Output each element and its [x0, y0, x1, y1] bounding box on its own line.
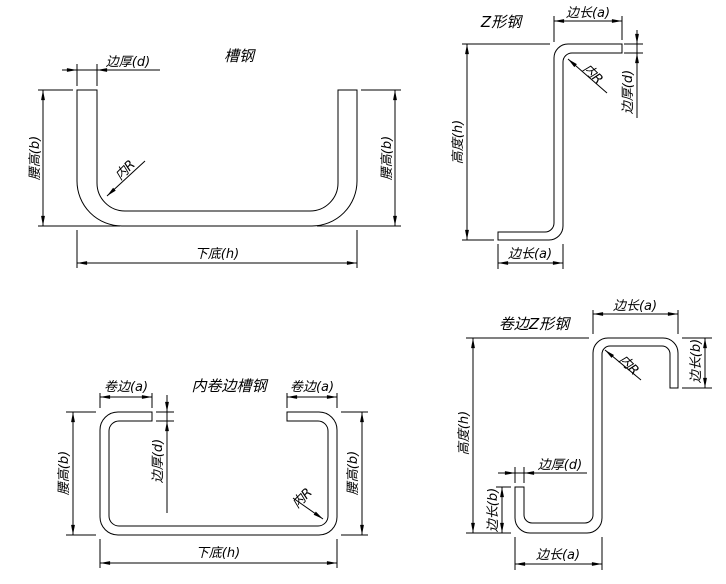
dim-label-bottom-base: 下底(h)	[195, 247, 239, 262]
profile-outline	[515, 338, 678, 533]
dim-label-waist-height-right: 腰高(b)	[346, 451, 361, 495]
dim-label-height: 高度(h)	[457, 411, 472, 455]
diagram-title: 内卷边槽钢	[191, 377, 268, 395]
dim-label-inner-radius: 内R	[615, 352, 641, 378]
profile-outline	[100, 412, 337, 535]
dim-label-edge-thickness: 边厚(d)	[151, 439, 166, 483]
dim-label-bottom-edge-length: 边长(a)	[536, 548, 580, 563]
dim-label-edge-thickness: 边厚(d)	[538, 458, 582, 473]
diagram-title: 槽钢	[224, 47, 256, 65]
steel-profiles-drawing: 槽钢 边厚(d) 腰高(b) 腰高(b) 内R 下底(h) Z形钢 边长(a)	[0, 0, 726, 584]
dim-label-bottom-edge-length: 边长(a)	[508, 247, 552, 262]
dim-label-waist-height-left: 腰高(b)	[28, 136, 43, 180]
dim-label-inner-radius: 内R	[579, 61, 605, 87]
profile-outline	[498, 44, 622, 240]
dim-label-lip-right: 边长(b)	[689, 339, 704, 383]
extension-lines	[66, 393, 368, 568]
dim-label-edge-thickness: 边厚(d)	[621, 70, 636, 114]
dim-label-top-edge-length: 边长(a)	[566, 6, 610, 21]
diagram-inward-lipped-channel-steel: 内卷边槽钢 卷边(a) 卷边(a) 边厚(d) 腰高(b) 腰高(b) 内R 下…	[57, 377, 368, 568]
diagram-lipped-z-shaped-steel: 卷边Z形钢 边长(a) 边长(b) 内R 高度(h) 边厚(d) 边长(b) 边…	[457, 299, 712, 570]
dim-label-lip-left: 边长(b)	[486, 488, 501, 532]
diagram-z-shaped-steel: Z形钢 边长(a) 边厚(d) 内R 高度(h) 边长(a)	[451, 6, 643, 269]
dim-label-bottom-base: 下底(h)	[196, 546, 240, 561]
dim-label-waist-height-right: 腰高(b)	[380, 136, 395, 180]
extension-lines	[466, 310, 712, 570]
dim-label-edge-thickness: 边厚(d)	[106, 55, 150, 70]
dim-label-lip-left: 卷边(a)	[104, 380, 148, 395]
drawing-sheet: 槽钢 边厚(d) 腰高(b) 腰高(b) 内R 下底(h) Z形钢 边长(a)	[0, 0, 726, 584]
dim-label-top-edge-length: 边长(a)	[613, 299, 657, 314]
extension-lines	[462, 16, 643, 269]
extension-lines	[38, 64, 401, 268]
diagram-title: 卷边Z形钢	[499, 315, 571, 333]
diagram-channel-steel: 槽钢 边厚(d) 腰高(b) 腰高(b) 内R 下底(h)	[28, 47, 401, 268]
profile-outline	[77, 90, 357, 226]
dim-label-inner-radius: 内R	[112, 157, 138, 183]
dim-label-waist-height-left: 腰高(b)	[57, 451, 72, 495]
dim-label-lip-right: 卷边(a)	[290, 380, 334, 395]
dim-label-height: 高度(h)	[451, 120, 466, 164]
diagram-title: Z形钢	[480, 13, 523, 31]
dim-label-inner-radius: 内R	[289, 485, 315, 511]
